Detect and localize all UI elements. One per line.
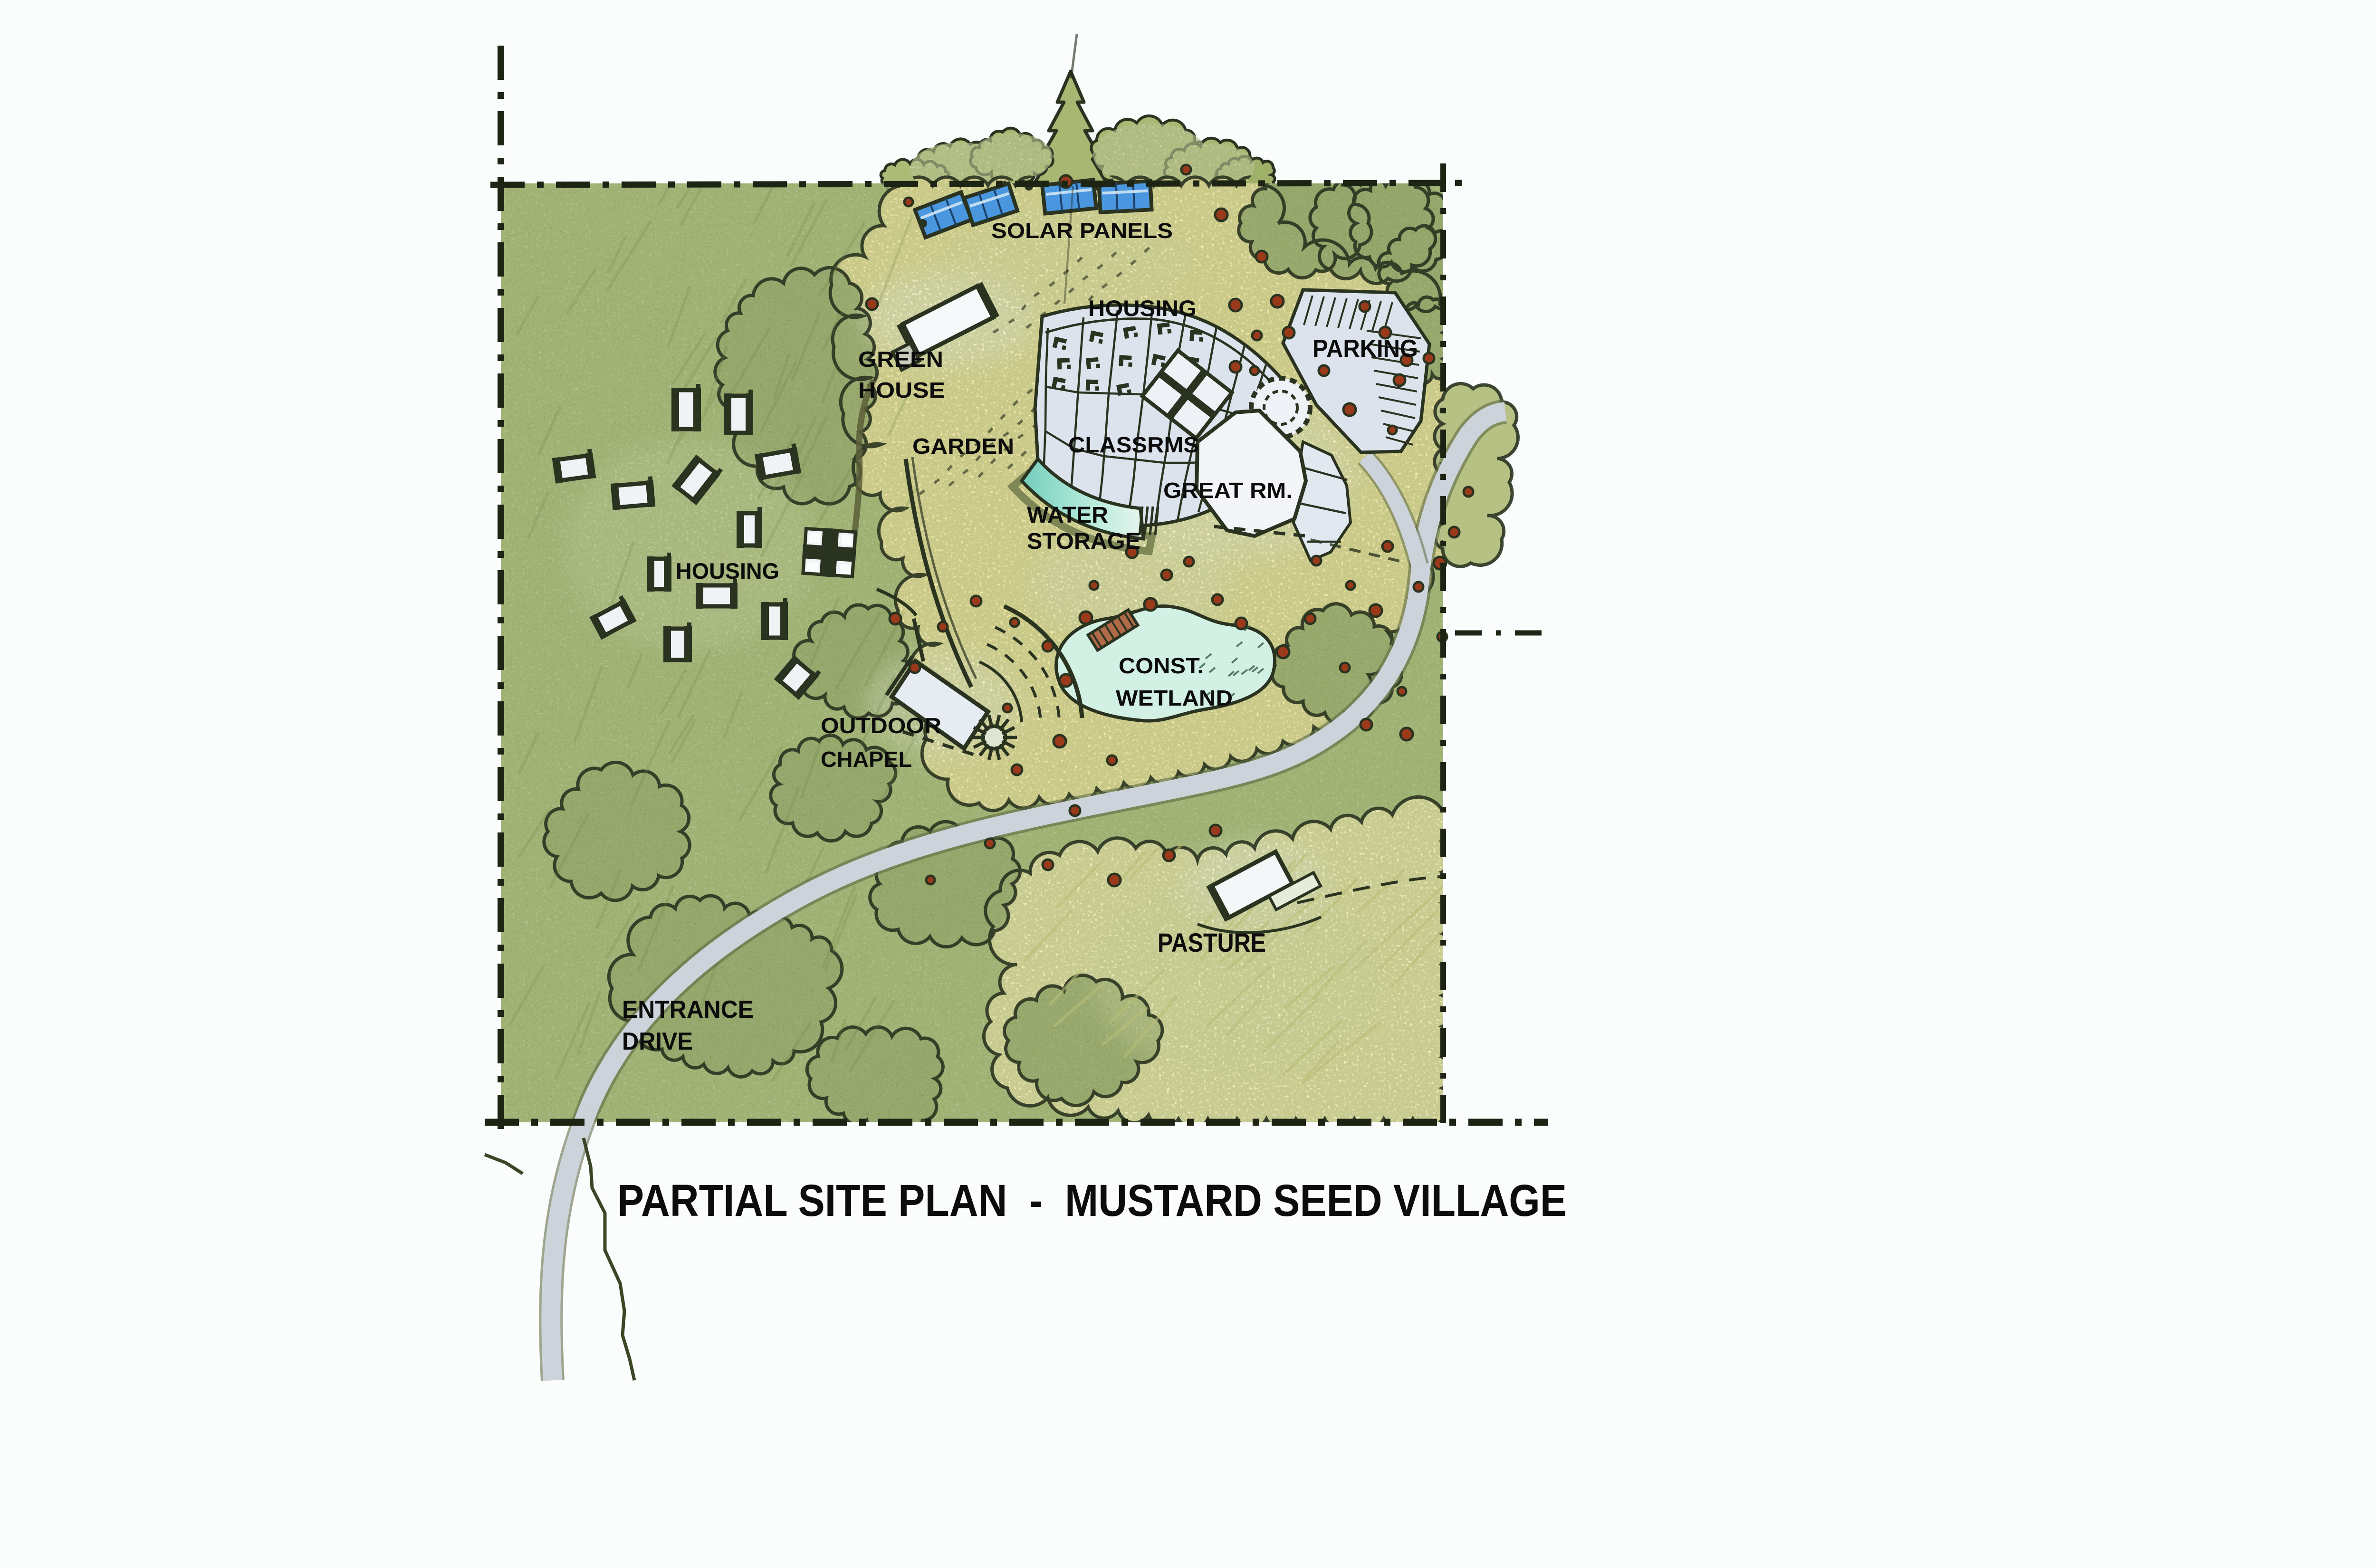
svg-text:GREAT RM.: GREAT RM. (1163, 478, 1293, 503)
svg-text:DRIVE: DRIVE (622, 1028, 693, 1055)
svg-text:HOUSING: HOUSING (676, 558, 779, 583)
svg-text:SOLAR PANELS: SOLAR PANELS (991, 219, 1173, 243)
svg-text:STORAGE: STORAGE (1027, 529, 1140, 554)
svg-text:WETLAND: WETLAND (1116, 686, 1233, 710)
svg-text:GARDEN: GARDEN (912, 434, 1014, 459)
svg-text:WATER: WATER (1027, 503, 1108, 528)
svg-text:HOUSING: HOUSING (1088, 296, 1197, 321)
svg-text:CHAPEL: CHAPEL (821, 747, 912, 772)
svg-text:CONST.: CONST. (1119, 653, 1204, 678)
svg-text:PARTIAL SITE PLAN - MUSTARD: PARTIAL SITE PLAN - MUSTARD SEED VILLAGE (617, 1176, 1567, 1226)
svg-text:PARKING: PARKING (1313, 335, 1418, 363)
svg-text:HOUSE: HOUSE (858, 378, 945, 402)
svg-text:PASTURE: PASTURE (1158, 927, 1266, 957)
svg-text:ENTRANCE: ENTRANCE (622, 996, 754, 1023)
svg-text:OUTDOOR: OUTDOOR (821, 713, 941, 738)
svg-text:GREEN: GREEN (858, 347, 943, 372)
svg-text:CLASSRMS: CLASSRMS (1068, 432, 1199, 457)
